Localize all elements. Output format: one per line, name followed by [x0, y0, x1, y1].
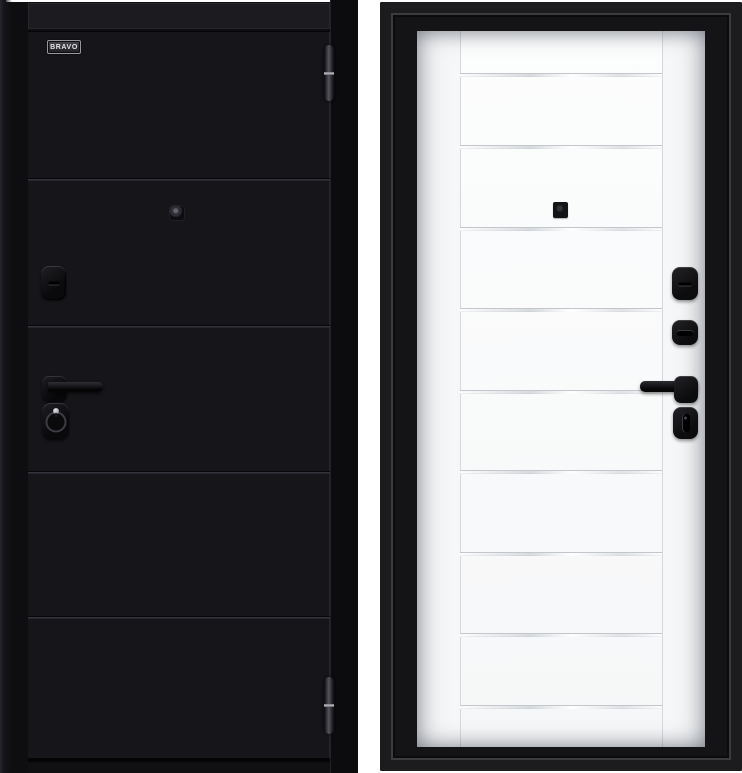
- left-door-handle: [48, 382, 103, 392]
- brand-badge: BRAVO: [47, 40, 81, 54]
- panel-divider: [460, 227, 662, 234]
- panel-divider: [460, 470, 662, 477]
- panel-divider: [460, 633, 662, 640]
- panel-divider: [460, 145, 662, 152]
- left-door-edge-highlight: [0, 0, 12, 773]
- product-photo: BRAVO: [0, 0, 742, 773]
- panel-groove: [28, 616, 330, 620]
- hinge: [324, 677, 334, 734]
- panel-groove: [28, 325, 330, 329]
- right-handle-rosette: [674, 376, 698, 403]
- peephole-icon: [553, 202, 568, 218]
- keyhole-cover-slot: [48, 282, 59, 285]
- hinge-band: [324, 704, 334, 707]
- left-door-bottom-sill: [28, 758, 330, 773]
- right-door: [380, 0, 742, 773]
- thumbturn: [672, 320, 698, 345]
- lock-escutcheon: [42, 403, 69, 440]
- left-door: BRAVO: [0, 0, 358, 773]
- panel-divider: [460, 73, 662, 80]
- cylinder-cover-slot: [679, 282, 692, 285]
- left-door-top-gap: [6, 0, 358, 2]
- left-door-header-rail: [28, 3, 330, 29]
- panel-divider: [460, 308, 662, 315]
- peephole-icon: [169, 205, 185, 221]
- hinge-band: [324, 72, 334, 75]
- panel-divider: [460, 552, 662, 559]
- panel-divider: [460, 705, 662, 712]
- hinge: [324, 45, 334, 101]
- left-door-right-jamb: [330, 0, 358, 773]
- brand-badge-label: BRAVO: [50, 44, 78, 51]
- thumbturn-knob: [677, 330, 694, 336]
- panel-groove: [28, 471, 330, 475]
- left-door-leaf: [28, 31, 330, 758]
- panel-groove: [28, 178, 330, 182]
- night-latch: [673, 407, 698, 439]
- panel-divider: [460, 390, 662, 397]
- night-latch-knob: [682, 414, 690, 433]
- keyhole-cover: [41, 266, 66, 300]
- lock-cylinder-notch: [55, 413, 57, 417]
- cylinder-cover: [672, 267, 698, 300]
